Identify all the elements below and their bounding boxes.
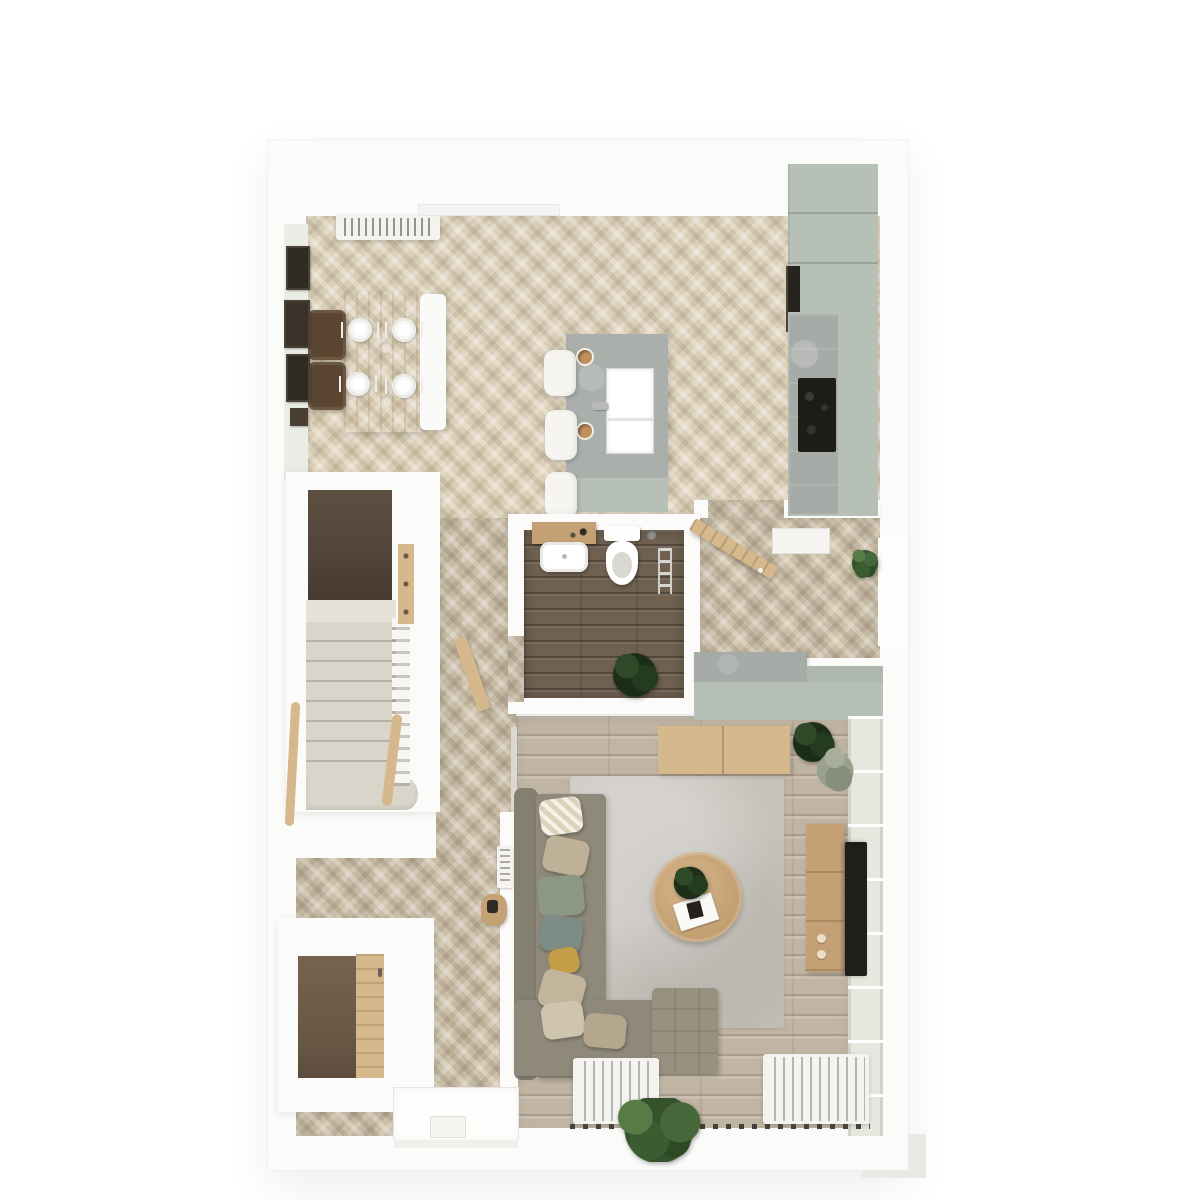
- scatter-cushion: [536, 874, 585, 918]
- sink-divider: [606, 418, 654, 421]
- toilet-brush: [646, 530, 656, 540]
- rear-door-threshold: [394, 1140, 518, 1148]
- stair-landing: [306, 600, 396, 622]
- radiator-slats: [500, 849, 510, 885]
- front-door-handle: [758, 568, 763, 573]
- toilet-seat: [612, 552, 632, 578]
- place-setting: [346, 372, 370, 396]
- coffee-cup: [578, 424, 592, 438]
- bar-stool: [544, 350, 576, 396]
- coat-rack: [398, 544, 414, 624]
- island-base: [570, 478, 668, 512]
- stair-void: [308, 490, 392, 602]
- wc-plant: [606, 646, 666, 704]
- wc-doorway-opening: [508, 636, 524, 702]
- scatter-cushion: [540, 999, 587, 1040]
- ottoman: [652, 988, 718, 1074]
- stair-treads: [306, 622, 396, 780]
- serving-bowl: [380, 396, 391, 407]
- dining-table: [344, 292, 420, 432]
- console-knob: [817, 950, 826, 959]
- entry-bench-seat: [694, 652, 807, 682]
- sink-faucet: [592, 402, 608, 410]
- entry-bench-base: [694, 682, 883, 720]
- entry-mat: [772, 528, 830, 554]
- hob: [798, 378, 836, 452]
- rear-doormat: [430, 1116, 466, 1138]
- towel-rail: [658, 548, 672, 594]
- picture-frame: [284, 300, 310, 348]
- console-knob: [817, 934, 826, 943]
- scatter-cushion: [538, 795, 585, 836]
- porch-recess: [878, 538, 908, 646]
- cupboard-door-handle: [378, 968, 382, 977]
- coffee-table-plant: [668, 862, 714, 904]
- basin-drain: [562, 554, 567, 559]
- media-console: [806, 824, 844, 972]
- sideboard: [658, 726, 790, 774]
- stool-decor-item: [487, 900, 498, 913]
- place-setting: [348, 318, 372, 342]
- dining-radiator: [336, 214, 440, 240]
- place-setting: [392, 318, 416, 342]
- picture-frame: [286, 246, 310, 290]
- scatter-cushion: [583, 1012, 628, 1050]
- wc-vanity-shelf: [532, 522, 596, 544]
- tall-kitchen-cabinets: [788, 164, 878, 314]
- picture-frame: [286, 354, 310, 402]
- serving-bowl: [380, 342, 391, 353]
- porch-plant: [850, 544, 880, 584]
- front-doorway-opening: [708, 500, 784, 518]
- toilet-cistern: [604, 526, 640, 541]
- window-plant: [600, 1098, 718, 1162]
- bar-stool: [545, 472, 577, 518]
- cupboard-interior: [298, 956, 356, 1078]
- island-sink: [606, 368, 654, 454]
- living-radiator: [763, 1054, 869, 1124]
- dining-window: [418, 204, 560, 216]
- radiator-slats: [767, 1057, 865, 1121]
- coffee-cup: [578, 350, 592, 364]
- entry-bench-step: [807, 666, 883, 682]
- floorplan-render: [0, 0, 1200, 1200]
- wall-mounted-tv: [845, 842, 867, 976]
- bar-stool: [545, 410, 577, 460]
- picture-frame: [290, 408, 308, 426]
- dining-bench: [420, 294, 446, 430]
- place-setting: [392, 374, 416, 398]
- hall-radiator: [497, 846, 513, 888]
- radiator-slats: [344, 218, 432, 236]
